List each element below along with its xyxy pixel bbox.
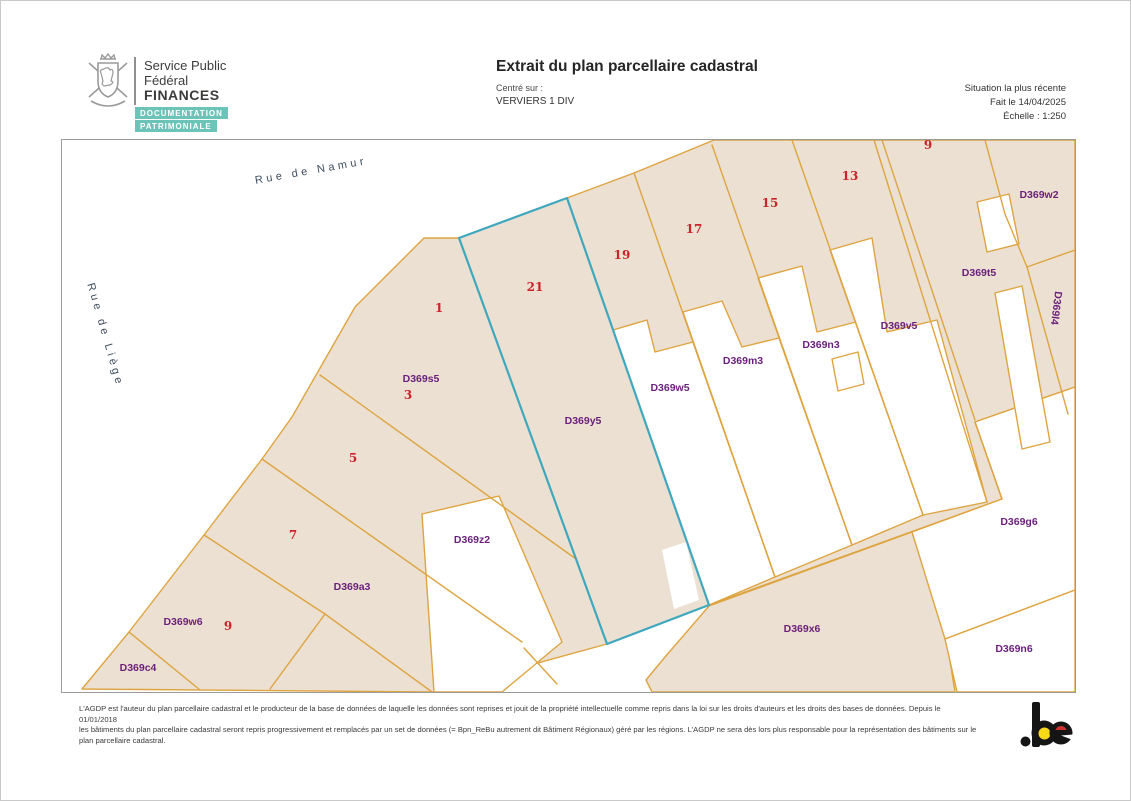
parcel-label: D369w6 — [163, 616, 202, 628]
org-name-line1: Service Public — [144, 58, 226, 73]
centered-on-value: VERVIERS 1 DIV — [496, 96, 574, 107]
parcel-label: D369n3 — [802, 339, 839, 351]
org-name-line3: FINANCES — [144, 88, 220, 103]
parcel-label: D369m3 — [723, 355, 763, 367]
copyright-line: L'AGDP est l'auteur du plan parcellaire … — [79, 704, 977, 725]
parcel-label: D369c4 — [120, 662, 157, 674]
org-name-line2: Fédéral — [144, 73, 188, 88]
parcel-label: D369z2 — [454, 534, 490, 546]
copyright-line: plan parcellaire cadastral. — [79, 736, 977, 747]
cadastral-extract-page: Service Public Fédéral FINANCES DOCUMENT… — [0, 0, 1131, 801]
logo-divider — [134, 57, 136, 105]
house-number-label: 21 — [527, 280, 544, 294]
map-label-layer: Rue de NamurRue de Liège1213191715139579… — [62, 140, 1075, 692]
parcel-label: D369s5 — [403, 373, 440, 385]
patrimoniale-badge: PATRIMONIALE — [135, 120, 217, 132]
house-number-label: 5 — [349, 451, 357, 465]
parcel-label: D369a3 — [334, 581, 371, 593]
parcel-label: D369w2 — [1019, 189, 1058, 201]
street-name-label: Rue de Liège — [84, 282, 125, 389]
documentation-badge: DOCUMENTATION — [135, 107, 228, 119]
belgian-coat-of-arms — [81, 51, 135, 109]
street-name-label: Rue de Namur — [254, 155, 368, 187]
parcel-label: D369x6 — [784, 623, 821, 635]
house-number-label: 3 — [404, 388, 412, 402]
house-number-label: 1 — [435, 301, 443, 315]
house-number-label: 17 — [686, 222, 703, 236]
parcel-label: D369y5 — [565, 415, 602, 427]
cadastral-map: Rue de NamurRue de Liège1213191715139579… — [61, 139, 1076, 693]
dot-be-logo — [1019, 699, 1073, 749]
house-number-label: 15 — [762, 196, 779, 210]
centered-on-label: Centré sur : — [496, 83, 543, 93]
house-number-label: 9 — [924, 139, 932, 152]
parcel-label: D369v5 — [881, 320, 918, 332]
situation-text: Situation la plus récente — [965, 83, 1066, 94]
copyright-line: les bâtiments du plan parcellaire cadast… — [79, 725, 977, 736]
parcel-label: D369t5 — [962, 267, 996, 279]
parcel-label: D369w5 — [650, 382, 689, 394]
house-number-label: 13 — [842, 169, 859, 183]
house-number-label: 9 — [224, 619, 232, 633]
parcel-label: D369l4 — [1048, 290, 1064, 325]
scale-text: Échelle : 1:250 — [1003, 111, 1066, 122]
date-text: Fait le 14/04/2025 — [990, 97, 1066, 108]
parcel-label: D369n6 — [995, 643, 1032, 655]
house-number-label: 19 — [614, 248, 631, 262]
house-number-label: 7 — [289, 528, 297, 542]
parcel-label: D369g6 — [1000, 516, 1037, 528]
copyright-notice: L'AGDP est l'auteur du plan parcellaire … — [79, 704, 977, 746]
page-title: Extrait du plan parcellaire cadastral — [496, 58, 758, 76]
